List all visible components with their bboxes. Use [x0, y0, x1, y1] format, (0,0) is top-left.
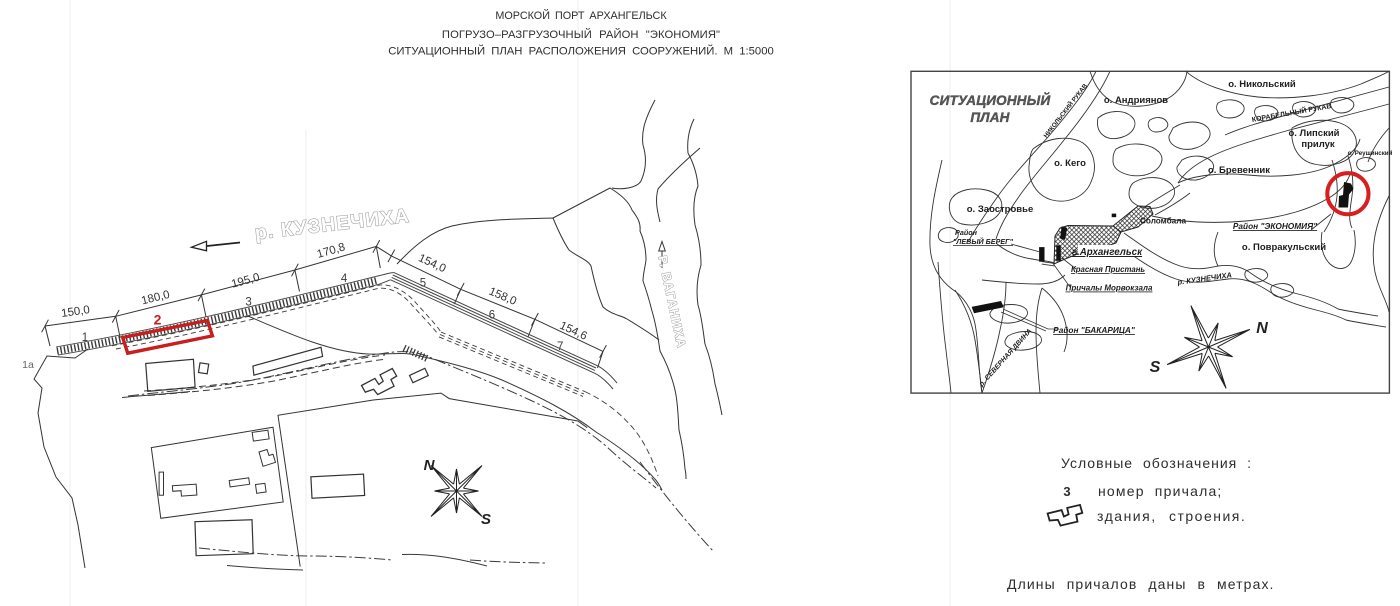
svg-text:о. Заостровье: о. Заостровье	[967, 204, 1034, 215]
svg-text:Район "БАКАРИЦА": Район "БАКАРИЦА"	[1053, 325, 1136, 335]
svg-text:МОРСКОЙ ПОРТ АРХАНГЕЛЬСК: МОРСКОЙ ПОРТ АРХАНГЕЛЬСК	[495, 9, 667, 22]
svg-text:S: S	[1150, 359, 1161, 376]
svg-text:N: N	[1256, 320, 1268, 337]
svg-text:Красная Пристань: Красная Пристань	[1071, 265, 1145, 274]
svg-text:Условные обозначения :: Условные обозначения :	[1061, 455, 1252, 471]
svg-text:г.Архангельск: г.Архангельск	[1072, 247, 1143, 258]
svg-text:о. Липский: о. Липский	[1288, 128, 1339, 139]
svg-text:ПОГРУЗО–РАЗГРУЗОЧНЫЙ РАЙОН "ЭК: ПОГРУЗО–РАЗГРУЗОЧНЫЙ РАЙОН "ЭКОНОМИЯ"	[442, 28, 720, 41]
svg-text:Район: Район	[955, 228, 978, 237]
svg-text:"ЛЕВЫЙ БЕРЕГ": "ЛЕВЫЙ БЕРЕГ"	[953, 237, 1014, 246]
svg-text:о. Повракульский: о. Повракульский	[1242, 242, 1326, 253]
svg-text:ПЛАН: ПЛАН	[970, 110, 1009, 125]
svg-text:прилук: прилук	[1301, 139, 1335, 150]
svg-text:Причалы Морвокзала: Причалы Морвокзала	[1066, 284, 1153, 293]
svg-text:о. Кего: о. Кего	[1054, 158, 1086, 169]
svg-text:о. Бревенник: о. Бревенник	[1208, 165, 1270, 176]
svg-text:о. Реушинский: о. Реушинский	[1348, 150, 1393, 157]
svg-text:N: N	[424, 457, 436, 474]
svg-text:S: S	[481, 511, 491, 528]
svg-text:здания, строения.: здания, строения.	[1097, 508, 1246, 524]
svg-text:1а: 1а	[22, 359, 34, 371]
svg-text:о. Андриянов: о. Андриянов	[1104, 95, 1168, 106]
svg-text:3: 3	[1063, 484, 1070, 499]
svg-text:СИТУАЦИОННЫЙ ПЛАН РАСПОЛОЖЕНИЯ: СИТУАЦИОННЫЙ ПЛАН РАСПОЛОЖЕНИЯ СООРУЖЕНИ…	[388, 45, 774, 58]
svg-text:Соломбала: Соломбала	[1140, 216, 1186, 226]
svg-text:о. Никольский: о. Никольский	[1228, 79, 1296, 90]
svg-text:Район "ЭКОНОМИЯ": Район "ЭКОНОМИЯ"	[1233, 221, 1318, 231]
svg-text:2: 2	[154, 312, 162, 328]
svg-text:номер причала;: номер причала;	[1098, 483, 1223, 499]
svg-text:СИТУАЦИОННЫЙ: СИТУАЦИОННЫЙ	[930, 92, 1051, 108]
svg-text:Длины причалов даны в метрах.: Длины причалов даны в метрах.	[1007, 576, 1275, 592]
